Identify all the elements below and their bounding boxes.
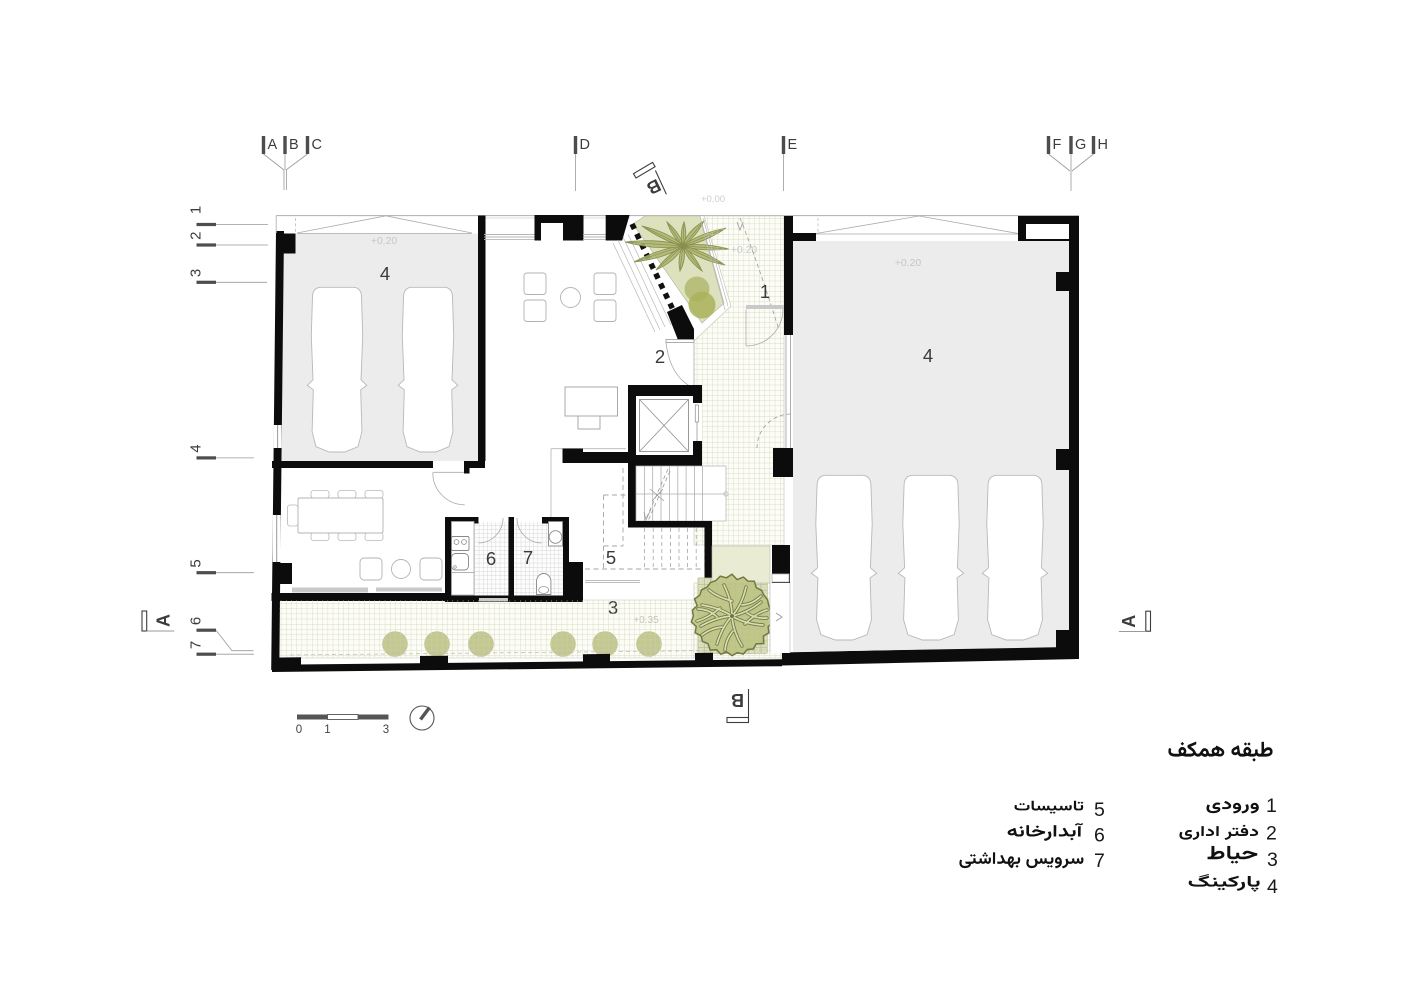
svg-text:G: G	[1075, 137, 1086, 153]
svg-text:+0.00: +0.00	[701, 194, 725, 205]
svg-text:B: B	[289, 137, 299, 153]
svg-text:H: H	[1098, 137, 1108, 153]
svg-text:5: 5	[1094, 799, 1105, 821]
svg-text:A: A	[268, 137, 278, 153]
svg-text:2: 2	[187, 232, 204, 240]
svg-text:1: 1	[1266, 795, 1277, 817]
svg-text:3: 3	[187, 269, 204, 277]
svg-text:7: 7	[1094, 850, 1105, 872]
svg-text:3: 3	[1267, 849, 1278, 871]
svg-text:3: 3	[383, 724, 389, 736]
svg-text:5: 5	[606, 547, 616, 568]
svg-text:C: C	[312, 137, 322, 153]
svg-text:+0.20: +0.20	[731, 244, 758, 256]
svg-text:1: 1	[760, 281, 770, 302]
svg-text:A: A	[154, 614, 174, 627]
svg-text:+0.20: +0.20	[895, 257, 922, 269]
svg-text:F: F	[1053, 137, 1062, 153]
svg-text:6: 6	[486, 548, 496, 569]
svg-text:+0.20: +0.20	[371, 235, 398, 247]
svg-text:A: A	[1119, 615, 1139, 628]
svg-text:0: 0	[296, 724, 302, 736]
svg-text:7: 7	[523, 547, 533, 568]
svg-text:2: 2	[655, 346, 665, 367]
svg-text:E: E	[788, 137, 798, 153]
svg-text:B: B	[731, 690, 744, 710]
svg-text:6: 6	[1094, 825, 1105, 847]
svg-text:1: 1	[324, 724, 330, 736]
svg-text:2: 2	[1266, 823, 1277, 845]
svg-text:4: 4	[923, 345, 933, 366]
svg-text:1: 1	[187, 206, 204, 214]
svg-text:7: 7	[187, 641, 204, 649]
svg-text:5: 5	[187, 559, 204, 567]
svg-text:4: 4	[1267, 876, 1278, 898]
svg-text:4: 4	[380, 263, 390, 284]
svg-text:6: 6	[187, 617, 204, 625]
svg-text:4: 4	[187, 444, 204, 452]
svg-text:D: D	[580, 137, 590, 153]
